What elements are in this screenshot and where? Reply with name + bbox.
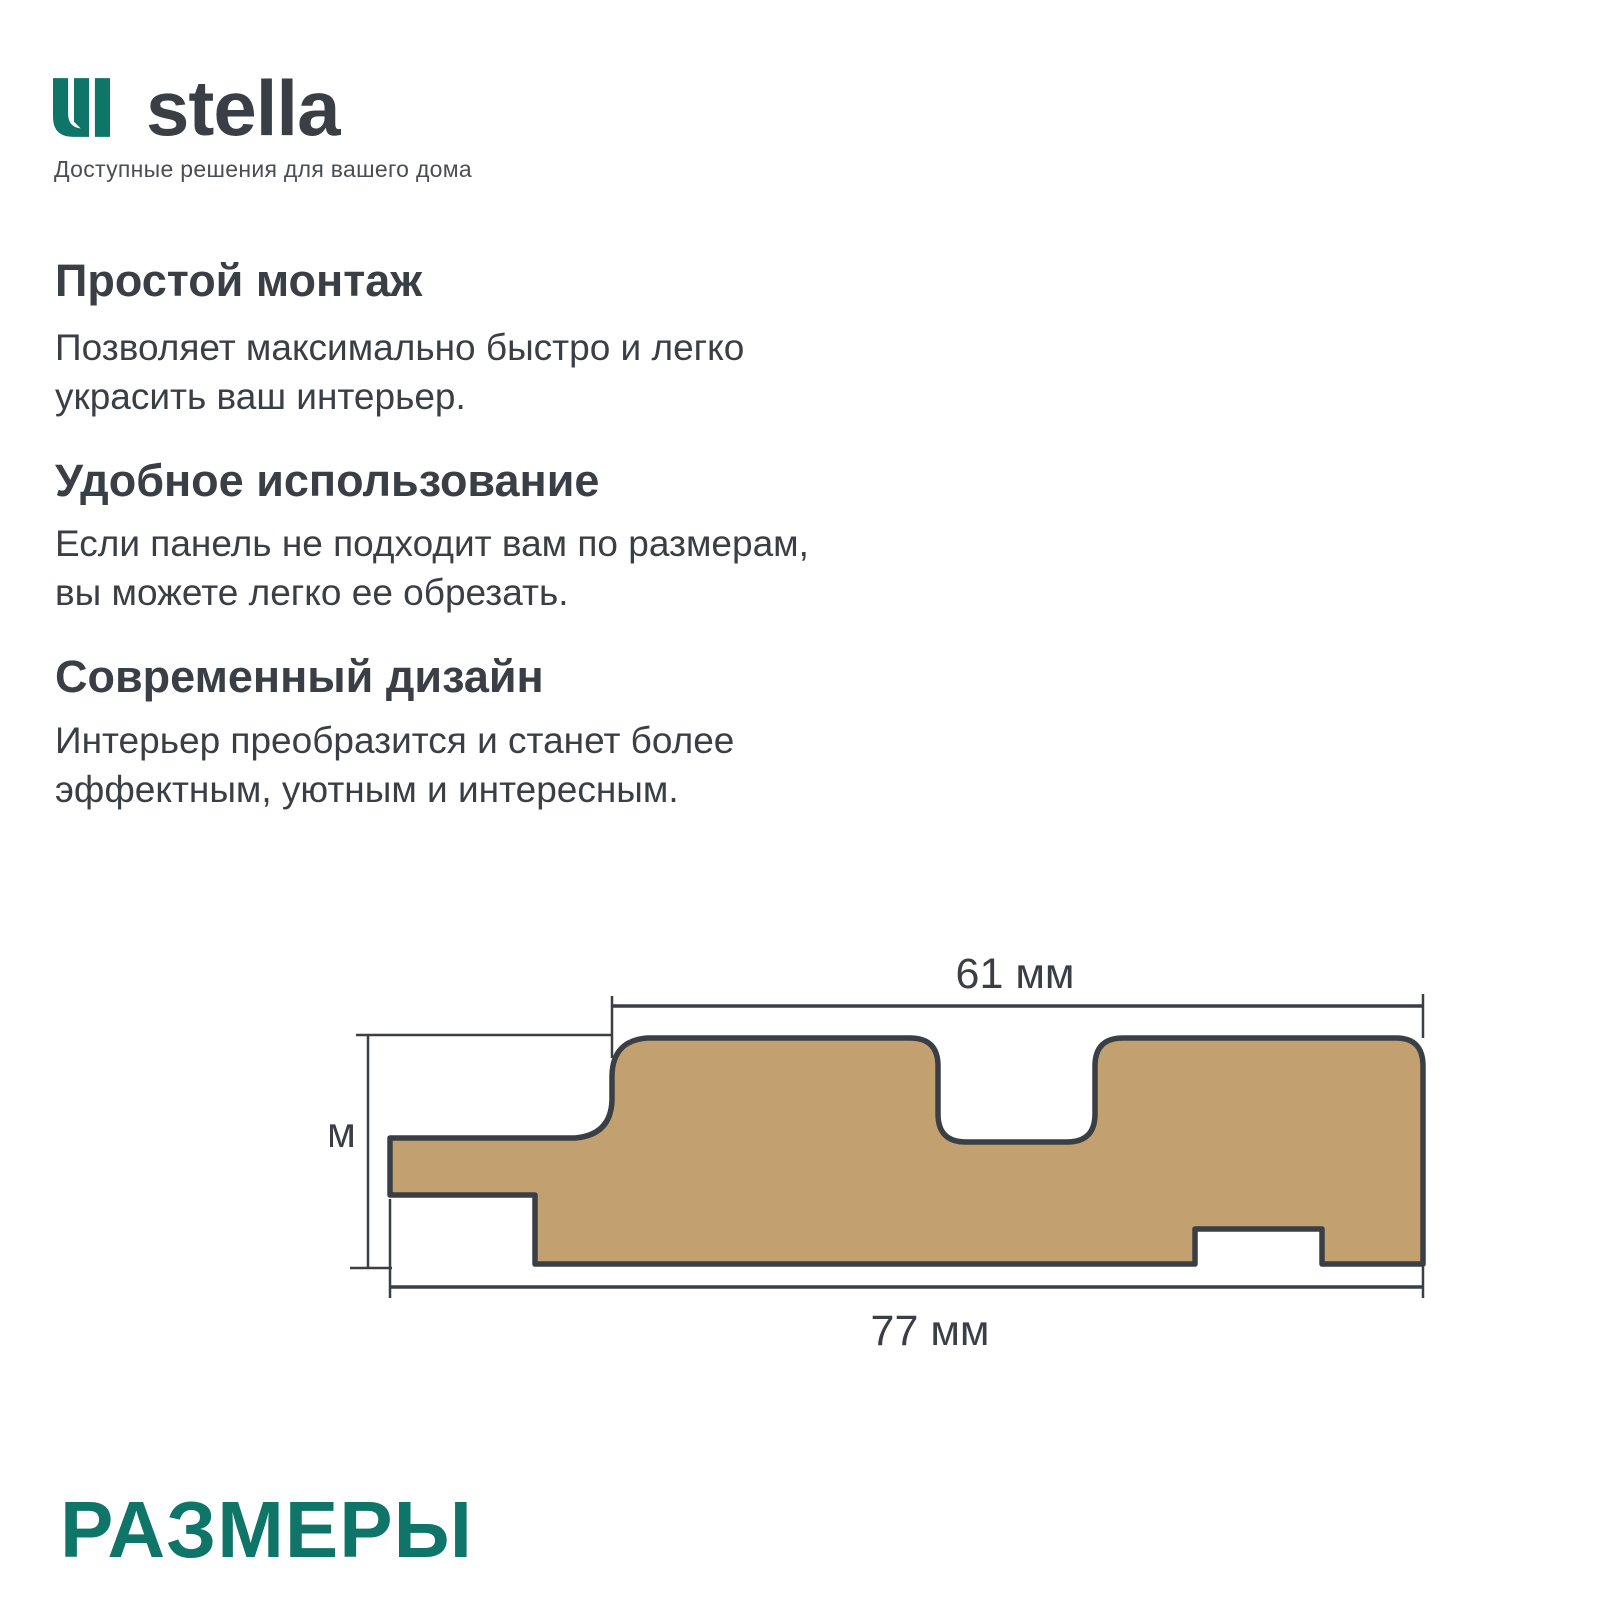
brand-tagline: Доступные решения для вашего дома — [54, 156, 472, 183]
body-line: Интерьер преобразится и станет более — [55, 720, 734, 761]
section-body-easy-install: Позволяет максимально быстро и легко укр… — [55, 323, 744, 421]
panel-profile-shape — [390, 1038, 1423, 1264]
dim-label-left: 16 мм — [330, 1109, 356, 1157]
section-heading-modern-design: Современный дизайн — [55, 652, 544, 702]
section-heading-convenient-use: Удобное использование — [55, 456, 599, 506]
logo-icon-shapes — [53, 78, 110, 137]
dim-label-top: 61 мм — [956, 950, 1075, 998]
body-line: Позволяет максимально быстро и легко — [55, 327, 744, 368]
section-heading-easy-install: Простой монтаж — [55, 256, 422, 306]
body-line: эффектным, уютным и интересным. — [55, 769, 679, 810]
body-line: вы можете легко ее обрезать. — [55, 572, 569, 613]
page: stella Доступные решения для вашего дома… — [0, 0, 1620, 1620]
sizes-section-title: РАЗМЕРЫ — [60, 1484, 473, 1576]
section-body-convenient-use: Если панель не подходит вам по размерам,… — [55, 519, 809, 617]
panel-cross-section-diagram: 61 мм 16 мм 77 мм — [330, 910, 1470, 1360]
dim-label-bottom: 77 мм — [871, 1307, 990, 1355]
brand-name: stella — [146, 70, 339, 146]
stella-logo-icon — [53, 73, 110, 142]
body-line: Если панель не подходит вам по размерам, — [55, 523, 809, 564]
body-line: украсить ваш интерьер. — [55, 376, 466, 417]
section-body-modern-design: Интерьер преобразится и станет более эфф… — [55, 716, 734, 814]
